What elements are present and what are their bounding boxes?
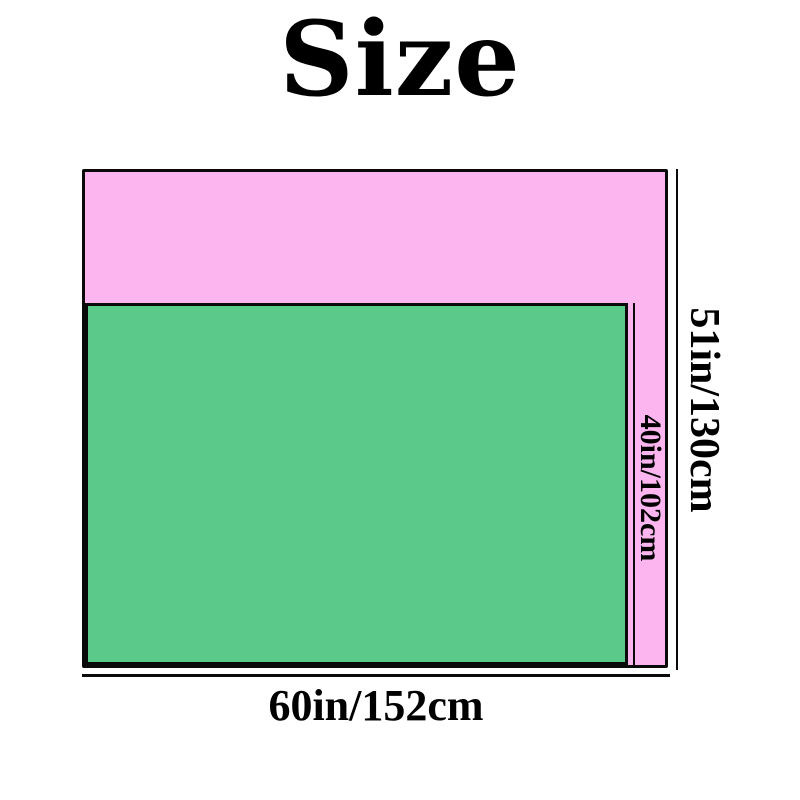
outer-size-rectangle bbox=[82, 169, 668, 668]
outer-height-dimension-line bbox=[676, 169, 678, 670]
inner-height-label: 40in/102cm bbox=[635, 415, 665, 562]
outer-width-dimension-line bbox=[82, 674, 670, 677]
page-title: Size bbox=[0, 6, 800, 114]
outer-height-label: 51in/130cm bbox=[683, 307, 725, 512]
size-diagram: Size 51in/130cm 40in/102cm 60in/152cm bbox=[0, 0, 800, 800]
inner-size-rectangle bbox=[85, 303, 628, 665]
outer-width-label: 60in/152cm bbox=[268, 684, 483, 728]
